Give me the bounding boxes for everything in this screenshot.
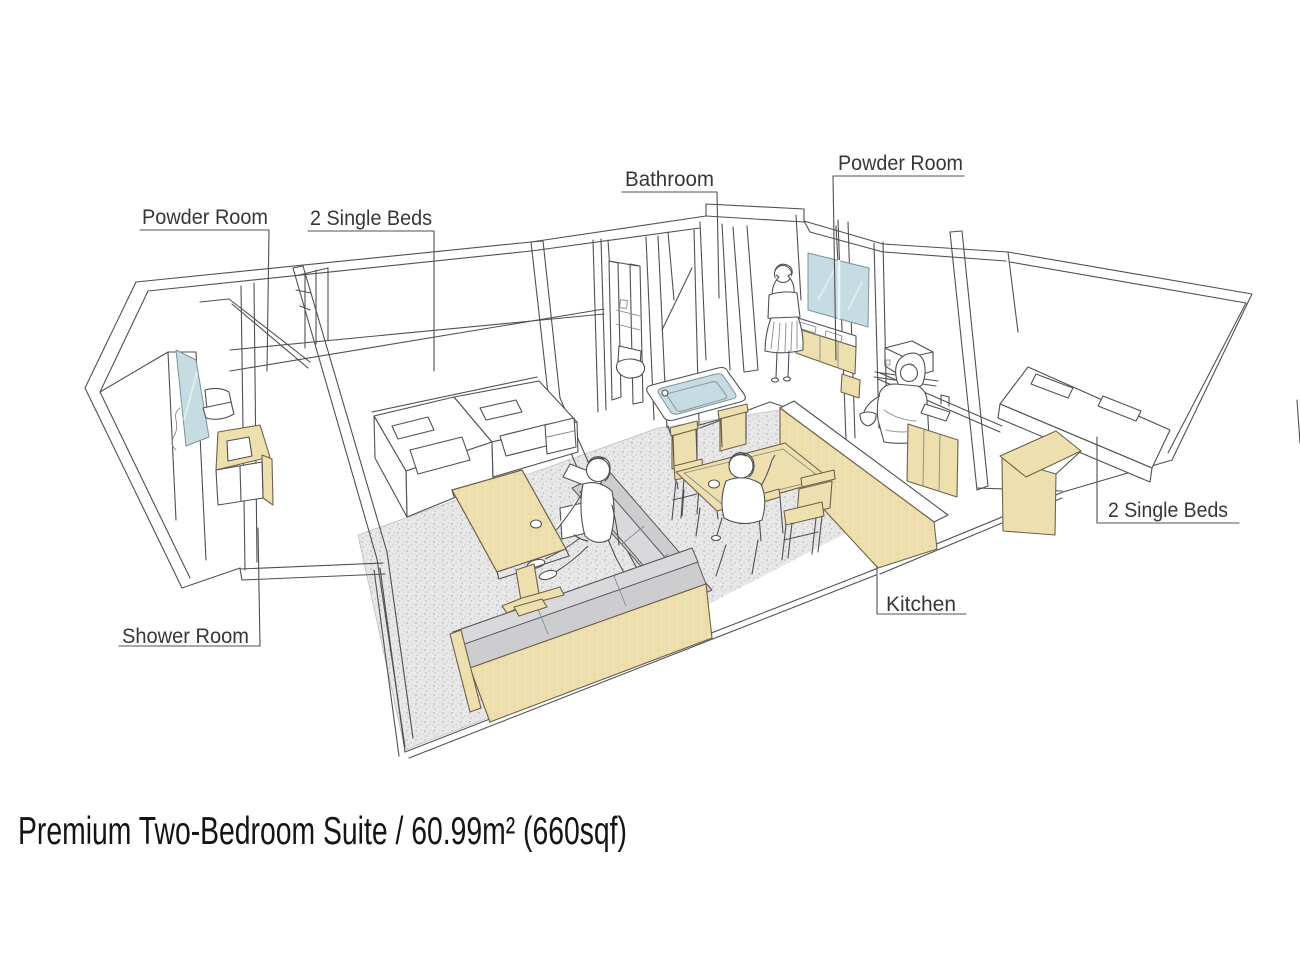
svg-text:2 Single Beds: 2 Single Beds bbox=[310, 207, 432, 230]
svg-text:Premium Two-Bedroom Suite / 60: Premium Two-Bedroom Suite / 60.99m² (660… bbox=[18, 810, 627, 853]
svg-text:Powder Room: Powder Room bbox=[142, 206, 268, 229]
svg-text:Kitchen: Kitchen bbox=[886, 593, 956, 616]
svg-text:Bathroom: Bathroom bbox=[625, 168, 714, 191]
svg-text:Shower Room: Shower Room bbox=[122, 625, 249, 648]
svg-text:Powder Room: Powder Room bbox=[838, 152, 963, 175]
svg-text:2 Single Beds: 2 Single Beds bbox=[1108, 499, 1228, 522]
